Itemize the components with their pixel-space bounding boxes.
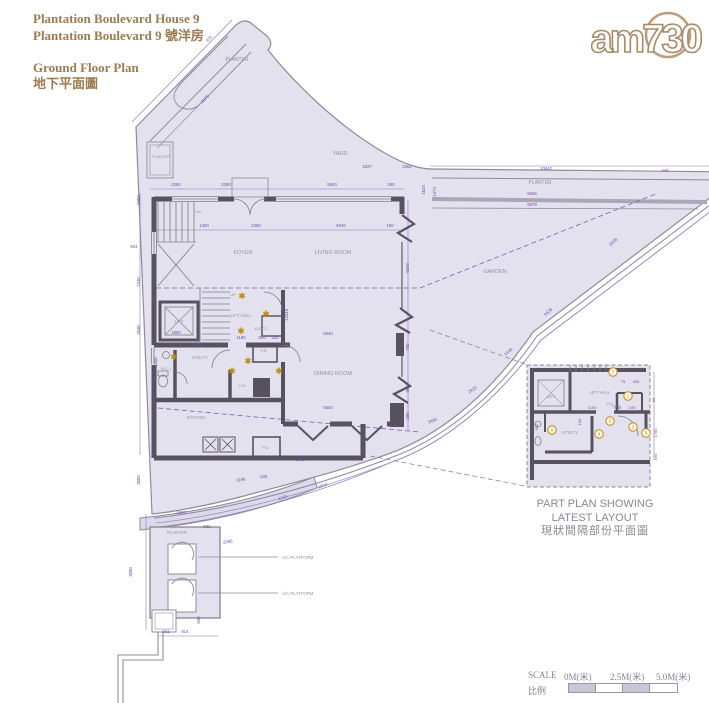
room-label: UTILITY xyxy=(192,355,208,360)
scale-segment-1 xyxy=(568,683,597,693)
dimension-label: 205 xyxy=(405,412,410,420)
dimension-label: 502 xyxy=(203,524,211,529)
inset-caption: PART PLAN SHOWING LATEST LAYOUT 現狀間隔部份平面… xyxy=(520,498,670,539)
dimension-label: 1823 xyxy=(421,185,426,195)
dimension-label: 1027 xyxy=(362,164,372,169)
dimension-label: 2266 xyxy=(223,538,234,545)
dimension-label: 100 xyxy=(271,335,279,340)
dimension-label: 150 xyxy=(386,223,394,228)
room-label: A/C PLATFORM xyxy=(282,555,314,560)
dimension-label: 5584 xyxy=(136,195,141,205)
inset-caption-chinese: 現狀間隔部份平面圖 xyxy=(520,525,670,539)
dimension-label: 700 xyxy=(405,343,410,351)
dimension-label: 3050 xyxy=(128,567,133,577)
dimension-label: 5540 xyxy=(327,182,337,187)
dimension-label: 2250 xyxy=(221,182,231,187)
inset-caption-line2: LATEST LAYOUT xyxy=(520,512,670,526)
scale-tick-1: 2.5M(米) xyxy=(610,670,644,683)
inset-room-label: P.D. xyxy=(607,402,614,406)
floor-plan-page: Plantation Boulevard House 9 Plantation … xyxy=(0,0,709,703)
renovation-star-icon: ✱ xyxy=(262,309,270,319)
inset-dimension-label: 900 xyxy=(534,423,539,430)
room-label: A/C PLATFORM xyxy=(282,591,314,596)
room-label: DINING ROOM xyxy=(314,371,352,377)
room-label: P.D. xyxy=(261,349,268,353)
dimension-label: 800 xyxy=(258,335,266,340)
dimension-label: 260 xyxy=(387,182,395,187)
room-label: PLANTER xyxy=(152,155,170,159)
floor-plan-drawing: PLANTERPLANTERYARDPLANTERFOYERLIVING ROO… xyxy=(0,0,709,703)
inset-caption-line1: PART PLAN SHOWING xyxy=(520,498,670,512)
room-label: H.R. xyxy=(239,384,247,388)
inset-dimension-label: 75 xyxy=(621,379,626,384)
inset-dimension-label: 160 xyxy=(653,453,658,460)
inset-room-label: LIFT xyxy=(547,394,556,399)
room-label: ELECT. xyxy=(255,327,268,331)
inset-dimension-label: 90 xyxy=(651,397,656,402)
dimension-label: 2362 xyxy=(402,164,412,169)
logo-text: am730 xyxy=(590,17,701,61)
scale-segment-4 xyxy=(649,683,678,693)
room-label: P.D. xyxy=(263,446,270,450)
inset-room-label: LIFT HALL xyxy=(590,390,611,395)
dimension-label: 375 xyxy=(205,34,214,43)
dimension-label: 440 xyxy=(661,168,669,173)
dimension-label: 1400 xyxy=(199,223,209,228)
dimension-label: 2250 xyxy=(251,223,261,228)
dimension-label: 5540 xyxy=(323,405,333,410)
room-label: FOYER xyxy=(234,250,253,256)
dimension-label: 9579 xyxy=(527,202,537,207)
dimension-label: 3572 xyxy=(405,383,410,393)
room-label: GARDEN xyxy=(483,269,507,275)
dimension-label: 1473 xyxy=(432,187,437,197)
dimension-label: 3530 xyxy=(136,325,141,335)
dimension-label: 1976 xyxy=(176,510,186,515)
scale-tick-2: 5.0M(米) xyxy=(656,670,690,683)
scale-tick-0: 0M(米) xyxy=(564,670,592,683)
room-label: YARD xyxy=(333,151,348,157)
inset-dimension-label: 800 xyxy=(615,405,622,410)
room-label: PLANTER xyxy=(167,530,187,535)
dimension-label: 2260 xyxy=(171,182,181,187)
dimension-label: 561 xyxy=(162,629,170,634)
dimension-label: 814 xyxy=(181,629,189,634)
scale-label-zh: 比例 xyxy=(528,684,546,697)
renovation-star-icon: ✱ xyxy=(238,291,246,301)
dimension-label: 14345 xyxy=(284,308,289,321)
room-label: LIFT xyxy=(175,319,184,324)
room-label: KITCHEN xyxy=(187,415,206,420)
room-label: UP xyxy=(230,293,236,297)
dimension-label: 604 xyxy=(130,244,138,249)
inset-dimension-label: 150 xyxy=(577,418,582,425)
inset-dimension-label: 1190 xyxy=(588,405,597,410)
renovation-star-icon: ✱ xyxy=(228,366,236,376)
room-label: W.C.1 xyxy=(161,367,171,371)
dimension-label: 5540 xyxy=(336,223,346,228)
dimension-label: 1000 xyxy=(153,357,158,367)
scale-label-en: SCALE xyxy=(528,670,557,680)
dimension-label: 5540 xyxy=(323,331,333,336)
inset-dimension-label: 1780 xyxy=(653,428,658,438)
am730-logo: am730 xyxy=(590,13,701,61)
room-label: PLANTER xyxy=(225,57,248,63)
room-label: PLANTER xyxy=(528,180,551,186)
scale-segment-2 xyxy=(595,683,624,693)
dimension-label: 630 xyxy=(196,616,201,624)
dimension-label: 10842 xyxy=(540,166,553,171)
dimension-label: 6378 xyxy=(405,263,410,273)
renovation-star-icon: ✱ xyxy=(244,356,252,366)
renovation-star-icon: ✱ xyxy=(275,366,283,376)
dimension-label: 2360 xyxy=(192,342,202,347)
scale-segment-3 xyxy=(622,683,651,693)
renovation-star-icon: ✱ xyxy=(170,352,178,362)
room-label: DN xyxy=(195,210,201,214)
room-label: LIFT HALL xyxy=(231,313,252,318)
dimension-label: 1530 xyxy=(136,277,141,287)
scale-bar: SCALE 0M(米) 2.5M(米) 5.0M(米) 比例 xyxy=(524,664,704,700)
room-label: LIVING ROOM xyxy=(315,250,352,256)
dimension-label: 1800 xyxy=(171,330,181,335)
renovation-star-icon: ✱ xyxy=(237,326,245,336)
inset-room-label: UTILITY xyxy=(562,430,578,435)
inset-dimension-label: 435 xyxy=(633,379,640,384)
dimension-label: 3000 xyxy=(136,475,141,485)
dimension-label: 9566 xyxy=(527,191,537,196)
inset-dimension-label: 100 xyxy=(629,405,636,410)
